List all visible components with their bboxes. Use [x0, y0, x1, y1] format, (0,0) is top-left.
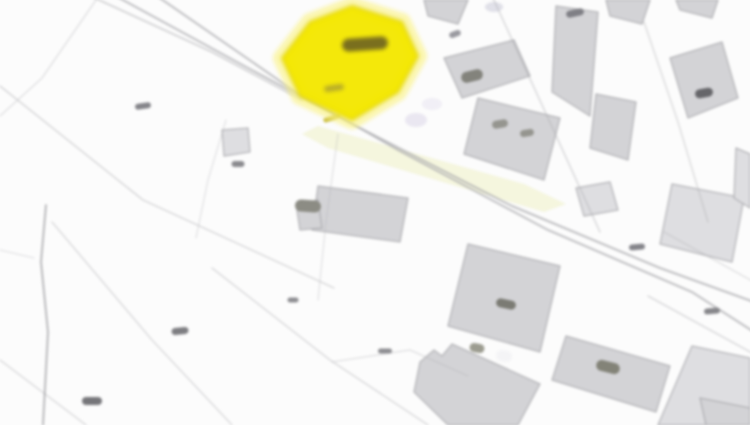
cadastral-map	[0, 0, 750, 425]
scan-tint-blob	[422, 98, 442, 110]
building-footprint	[734, 148, 750, 208]
map-viewport[interactable]	[0, 0, 750, 425]
building-footprint	[590, 94, 636, 160]
parcel-label-smudge	[82, 397, 102, 405]
scan-tint-blob	[405, 113, 427, 127]
parcel-label-smudge	[288, 298, 299, 303]
parcel-label-smudge	[378, 349, 392, 354]
scan-tint-blob	[485, 2, 503, 12]
parcel-label-smudge	[295, 199, 322, 213]
parcel-label-smudge	[232, 161, 245, 167]
building-footprint	[576, 182, 618, 216]
building-footprint	[222, 128, 250, 156]
